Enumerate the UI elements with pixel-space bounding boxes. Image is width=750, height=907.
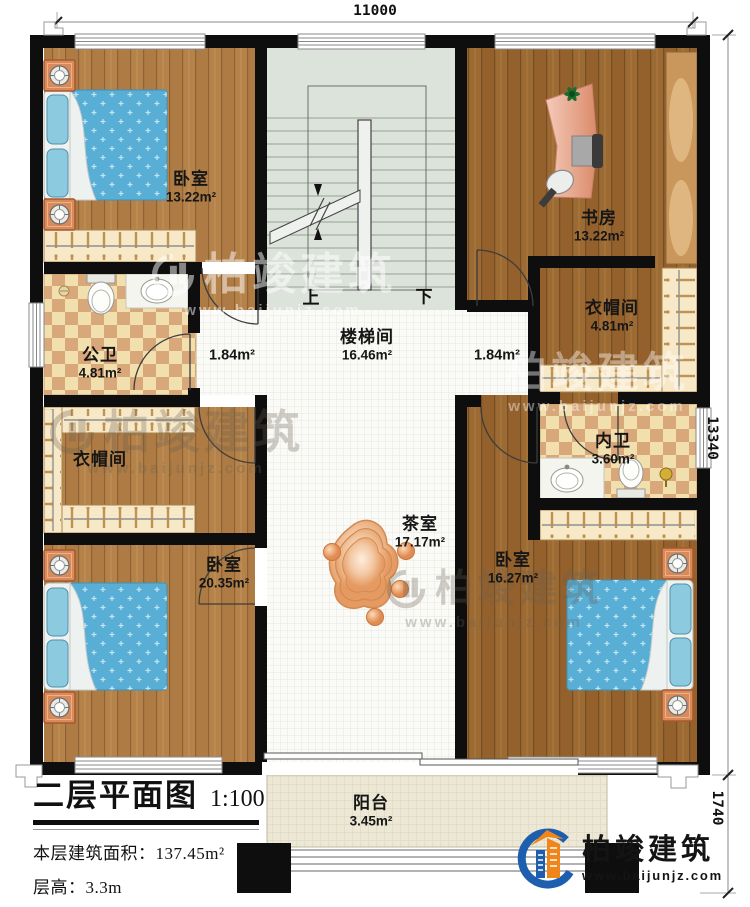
bed-bottom-right xyxy=(567,580,693,690)
floor-height-value: 3.3m xyxy=(86,878,122,897)
label-stair-hall: 楼梯间 16.46m² xyxy=(340,327,394,362)
label-study: 书房 13.22m² xyxy=(574,208,624,243)
brand-url: www.baijunjz.com xyxy=(582,868,723,883)
label-corridor-right: 1.84m² xyxy=(474,348,520,365)
title-rule-thin xyxy=(33,829,259,830)
plan-scale: 1:100 xyxy=(210,786,265,813)
label-bedroom-top-left: 卧室 13.22m² xyxy=(166,169,216,204)
floor-plan-page: 柏竣建筑 www.baijunjz.com 柏竣建筑 www.baijunjz.… xyxy=(0,0,750,907)
label-public-bathroom: 公卫 4.81m² xyxy=(79,345,122,380)
brand-logo-icon xyxy=(514,820,576,898)
label-bedroom-bottom-left: 卧室 20.35m² xyxy=(199,555,249,590)
dimension-right: 13340 xyxy=(704,403,720,473)
label-inner-bathroom: 内卫 3.60m² xyxy=(592,431,635,466)
stairs-up-label: 上 xyxy=(303,284,320,309)
label-bedroom-bottom-right: 卧室 16.27m² xyxy=(488,550,538,585)
label-balcony: 阳台 3.45m² xyxy=(350,793,393,828)
label-cloakroom-right: 衣帽间 4.81m² xyxy=(585,298,639,333)
brand-logo: 柏竣建筑 www.baijunjz.com xyxy=(514,820,723,898)
floor-area-value: 137.45m² xyxy=(156,844,225,863)
study-wardrobe xyxy=(666,52,697,264)
floor-area-label: 本层建筑面积： xyxy=(33,844,156,863)
label-corridor-left: 1.84m² xyxy=(209,348,255,365)
label-cloakroom-left: 衣帽间 xyxy=(73,450,127,470)
dimension-top: 11000 xyxy=(340,3,410,19)
title-rule-thick xyxy=(33,820,259,825)
bed-bottom-left xyxy=(44,583,167,690)
brand-name: 柏竣建筑 xyxy=(582,835,723,867)
plan-title: 二层平面图 xyxy=(33,770,198,815)
bed-top-left xyxy=(44,90,167,200)
label-tea-room: 茶室 17.17m² xyxy=(395,514,445,549)
stairs-down-label: 下 xyxy=(416,283,433,308)
floor-height-label: 层高： xyxy=(33,878,86,897)
title-block: 二层平面图 1:100 本层建筑面积：137.45m² 层高：3.3m xyxy=(33,770,265,898)
